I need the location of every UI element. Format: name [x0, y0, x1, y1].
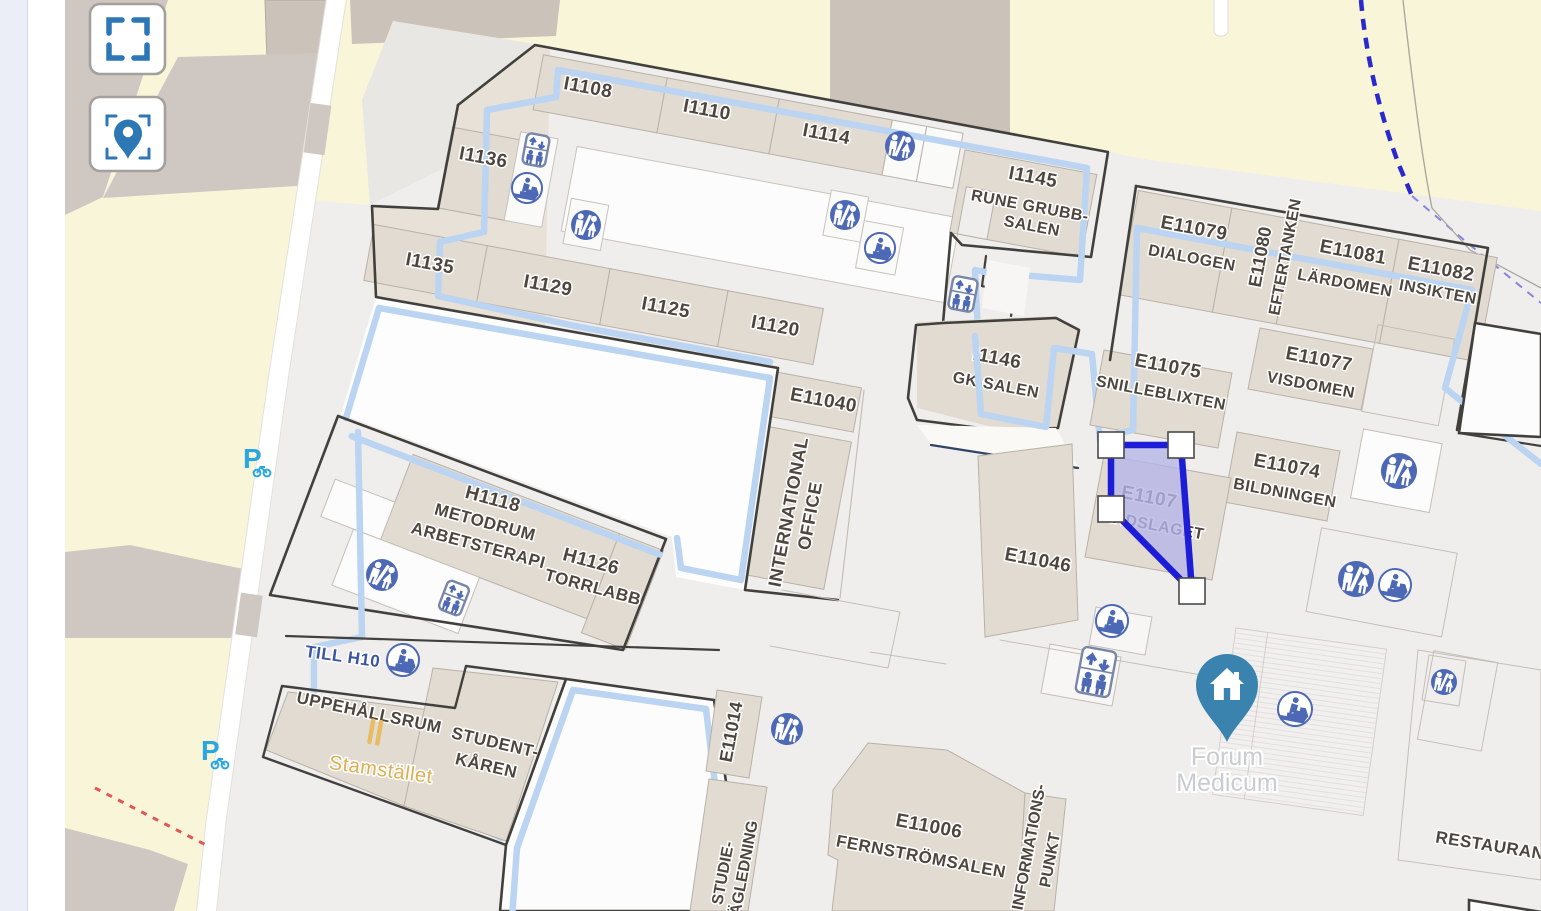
svg-text:Medicum: Medicum — [1176, 769, 1277, 797]
svg-text:Forum: Forum — [1191, 743, 1263, 771]
